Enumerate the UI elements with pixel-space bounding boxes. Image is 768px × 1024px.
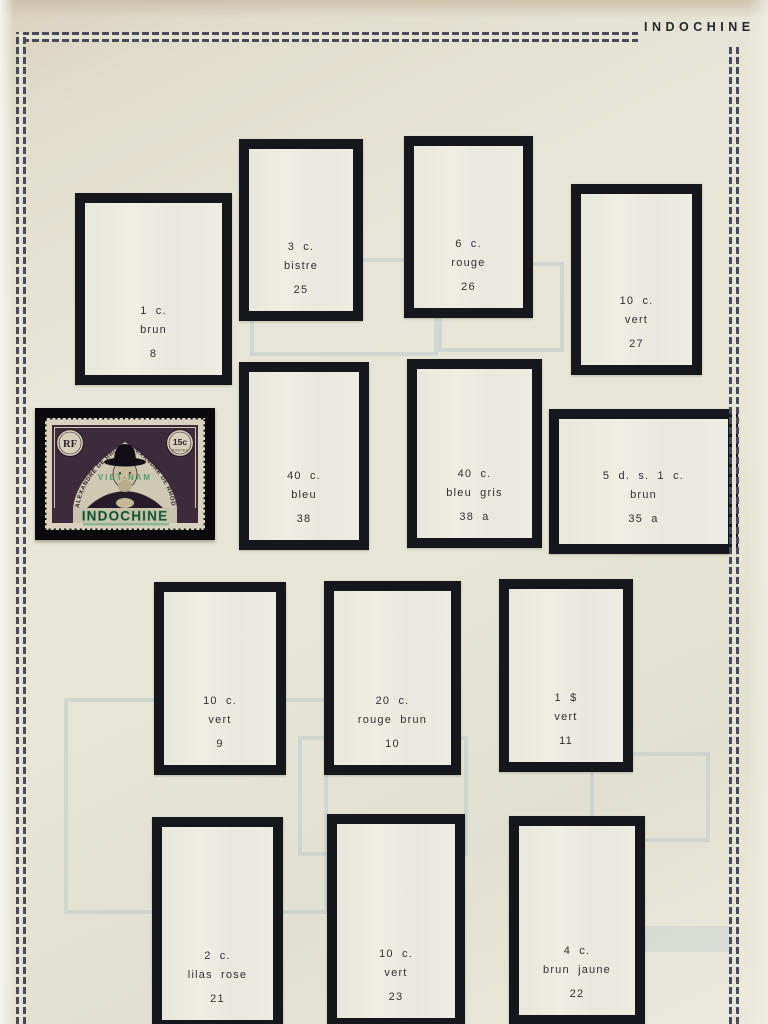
slot-color: bleu <box>249 486 359 506</box>
slot-number: 10 <box>334 735 451 755</box>
slot-denomination: 10 c. <box>337 945 455 965</box>
slot-color: brun jaune <box>519 961 635 981</box>
stamp-postes-text: POSTES <box>172 449 189 453</box>
slot-label: 10 c. vert 23 <box>337 945 455 1008</box>
slot-number: 23 <box>337 988 455 1008</box>
portrait-collar <box>116 498 134 508</box>
slot-number: 9 <box>164 735 276 755</box>
slot-color: vert <box>164 711 276 731</box>
slot-label: 20 c. rouge brun 10 <box>334 692 451 755</box>
slot-number: 22 <box>519 985 635 1005</box>
slot-color: vert <box>581 311 692 331</box>
stamp-value-circle: 15c POSTES <box>167 430 194 457</box>
slot-denomination: 20 c. <box>334 692 451 712</box>
stamp-slot: 10 c. vert 27 <box>571 184 702 375</box>
stamp-slot: 6 c. rouge 26 <box>404 136 533 318</box>
stamp-slot: 1 $ vert 11 <box>499 579 633 772</box>
slot-color: bistre <box>249 257 353 277</box>
slot-label: 6 c. rouge 26 <box>414 235 523 298</box>
stamp-slot: 2 c. lilas rose 21 <box>152 817 283 1024</box>
stamp-overprint-text: VIET-NAM <box>98 473 152 482</box>
stamp-image: ALEXANDRE DE RHODES ALEXANDRE DE RHODES … <box>43 416 207 532</box>
mounted-stamp: ALEXANDRE DE RHODES ALEXANDRE DE RHODES … <box>35 408 215 540</box>
country-band-ornament-left <box>52 508 73 523</box>
stamp-country-band: INDOCHINE <box>52 508 198 524</box>
photo-edge-right <box>748 0 768 1024</box>
country-band-ornament-right <box>177 508 198 523</box>
slot-number: 21 <box>162 990 273 1010</box>
slot-denomination: 1 $ <box>509 689 623 709</box>
stamp-monogram-circle: RF <box>57 430 84 457</box>
stamp-slot: 20 c. rouge brun 10 <box>324 581 461 775</box>
album-page-photo: INDOCHINE ALEXANDRE DE RHODES ALEXANDRE … <box>0 0 768 1024</box>
stamp-slot: 40 c. bleu gris 38 a <box>407 359 542 548</box>
slot-label: 10 c. vert 27 <box>581 292 692 355</box>
slot-color: lilas rose <box>162 966 273 986</box>
slot-label: 4 c. brun jaune 22 <box>519 942 635 1005</box>
slot-denomination: 1 c. <box>85 302 222 322</box>
slot-label: 1 $ vert 11 <box>509 689 623 752</box>
slot-denomination: 40 c. <box>417 465 532 485</box>
slot-denomination: 4 c. <box>519 942 635 962</box>
stamp-value-text: 15c <box>173 437 187 447</box>
stamp-monogram-text: RF <box>63 439 77 450</box>
photo-edge-top <box>0 0 768 18</box>
slot-color: bleu gris <box>417 484 532 504</box>
chain-border-top <box>22 32 638 42</box>
slot-label: 2 c. lilas rose 21 <box>162 947 273 1010</box>
slot-number: 11 <box>509 732 623 752</box>
slot-number: 38 <box>249 510 359 530</box>
photo-edge-left <box>0 0 14 1024</box>
slot-color: rouge <box>414 254 523 274</box>
slot-number: 25 <box>249 281 353 301</box>
slot-number: 8 <box>85 345 222 365</box>
stamp-slot: 4 c. brun jaune 22 <box>509 816 645 1024</box>
slot-color: brun <box>559 486 728 506</box>
stamp-slot: 10 c. vert 9 <box>154 582 286 775</box>
slot-number: 38 a <box>417 508 532 528</box>
slot-denomination: 10 c. <box>164 692 276 712</box>
page-title: INDOCHINE <box>644 20 755 34</box>
slot-number: 26 <box>414 278 523 298</box>
slot-denomination: 6 c. <box>414 235 523 255</box>
stamp-slot: 1 c. brun 8 <box>75 193 232 385</box>
slot-label: 1 c. brun 8 <box>85 302 222 365</box>
stamp-slot: 3 c. bistre 25 <box>239 139 363 321</box>
slot-label: 40 c. bleu 38 <box>249 467 359 530</box>
slot-denomination: 40 c. <box>249 467 359 487</box>
stamp-slot: 40 c. bleu 38 <box>239 362 369 550</box>
chain-border-right <box>729 44 739 1024</box>
slot-denomination: 5 d. s. 1 c. <box>559 467 728 487</box>
stamp-slot: 10 c. vert 23 <box>327 814 465 1024</box>
slot-denomination: 2 c. <box>162 947 273 967</box>
slot-color: rouge brun <box>334 711 451 731</box>
slot-color: brun <box>85 321 222 341</box>
slot-label: 3 c. bistre 25 <box>249 238 353 301</box>
stamp-overprint-smudge <box>83 523 169 526</box>
slot-denomination: 10 c. <box>581 292 692 312</box>
stamp-slot: 5 d. s. 1 c. brun 35 a <box>549 409 738 554</box>
chain-border-left <box>16 32 26 1024</box>
slot-number: 35 a <box>559 510 728 530</box>
slot-denomination: 3 c. <box>249 238 353 258</box>
slot-label: 40 c. bleu gris 38 a <box>417 465 532 528</box>
slot-color: vert <box>337 964 455 984</box>
slot-label: 10 c. vert 9 <box>164 692 276 755</box>
slot-number: 27 <box>581 335 692 355</box>
slot-color: vert <box>509 708 623 728</box>
stamp-country-text: INDOCHINE <box>82 509 169 524</box>
slot-label: 5 d. s. 1 c. brun 35 a <box>559 467 728 530</box>
